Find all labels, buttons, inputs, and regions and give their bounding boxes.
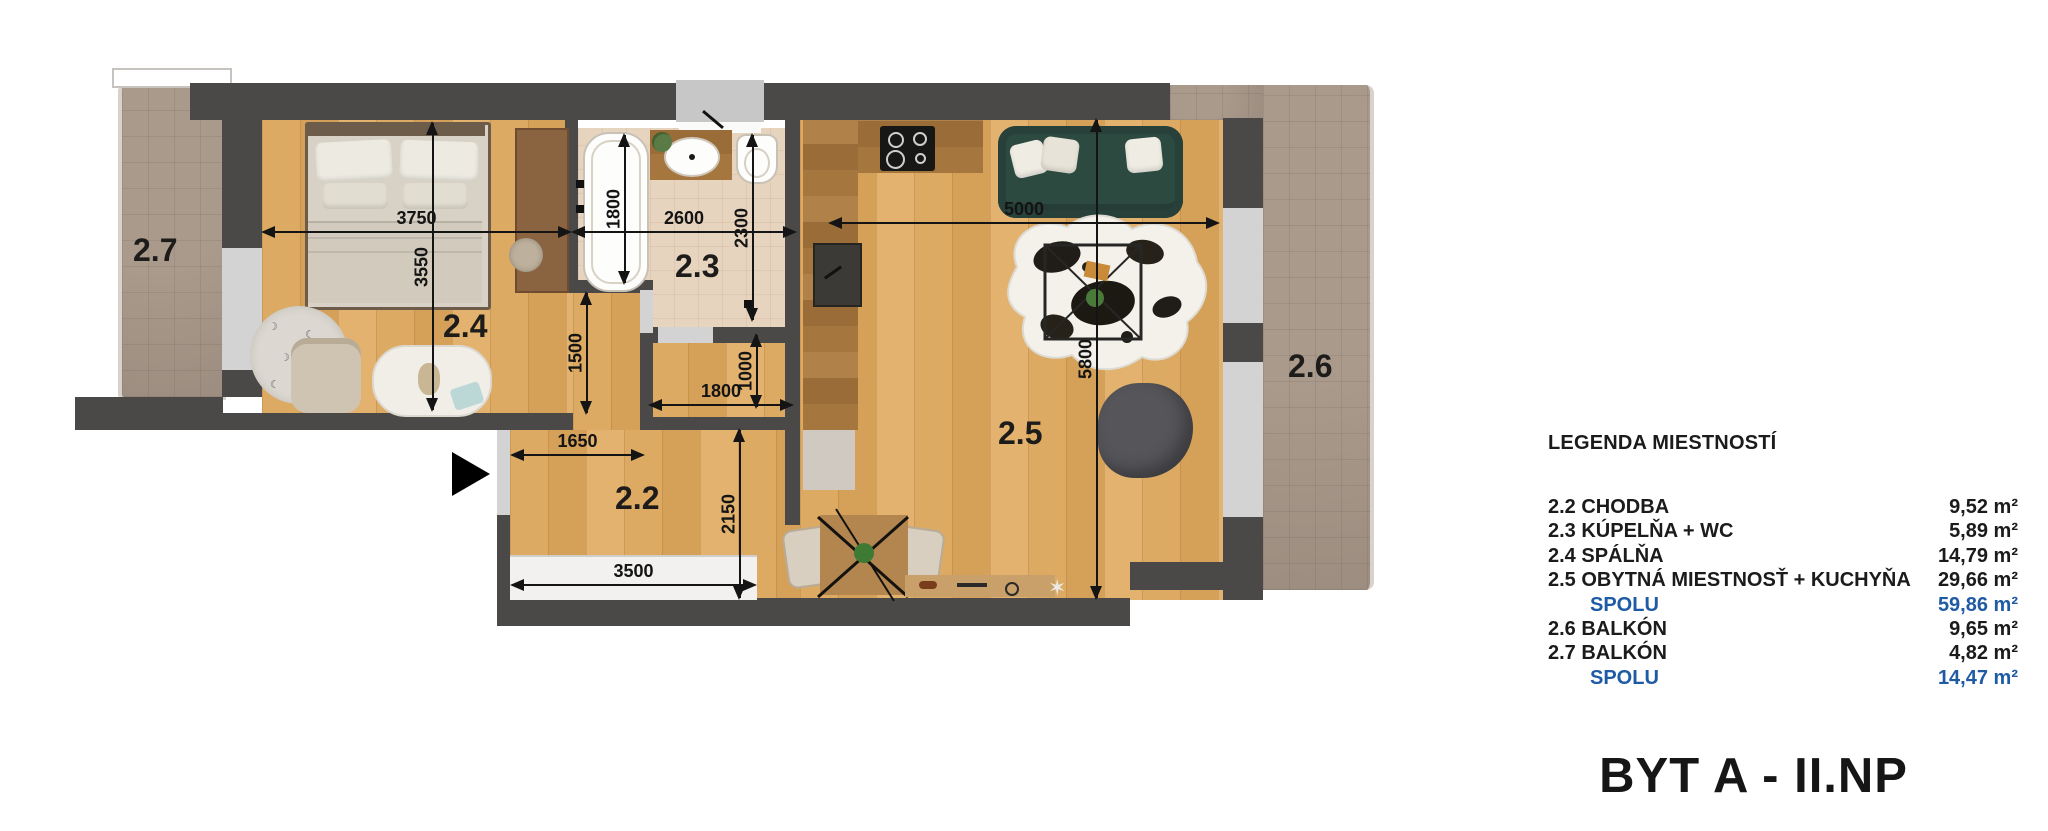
page-title: BYT A - II.NP (1599, 748, 1908, 804)
room-label-hallway: 2.2 (615, 480, 659, 517)
dining-table-legs (808, 505, 920, 605)
wall-nook-hall (640, 333, 653, 430)
dim-bedroom-height: 3550 (432, 123, 434, 410)
room-label-balcony-left: 2.7 (133, 232, 177, 269)
legend-row: 2.6 BALKÓN9,65 m² (1548, 617, 2018, 641)
nook-door (640, 290, 653, 333)
room-label-bathroom: 2.3 (675, 248, 719, 285)
living-balcony-window-1 (1223, 208, 1263, 323)
dim-bedroom-width: 3750 (263, 231, 570, 233)
kitchen-sink (813, 243, 862, 307)
entrance-arrow-icon (452, 452, 490, 496)
wall-bottom-right-step (1130, 562, 1263, 590)
room-label-bedroom: 2.4 (443, 308, 487, 345)
door-hinge-mark-2 (576, 205, 584, 213)
dim-bathtub-length: 1800 (624, 135, 626, 283)
legend-title: LEGENDA MIESTNOSTÍ (1548, 432, 2018, 455)
legend: LEGENDA MIESTNOSTÍ 2.2 CHODBA9,52 m² 2.3… (1548, 432, 2018, 690)
door-hinge-mark-1 (576, 180, 584, 188)
wall-bathroom-living (785, 120, 800, 525)
plant-small (652, 132, 672, 152)
legend-row: 2.3 KÚPELŇA + WC5,89 m² (1548, 519, 2018, 543)
balcony-2-6-floor-arm (1170, 85, 1263, 120)
kitchen-appliance (803, 430, 855, 490)
dim-living-width: 5000 (830, 222, 1218, 224)
room-label-living: 2.5 (998, 415, 1042, 452)
wall-hall-left (497, 515, 510, 606)
dim-bathroom-width: 2600 (573, 231, 795, 233)
legend-row-total: SPOLU59,86 m² (1548, 593, 2018, 617)
teddy-bear (418, 363, 440, 395)
blanket (449, 381, 484, 411)
entrance-door-strip (497, 430, 510, 515)
legend-row-total: SPOLU14,47 m² (1548, 666, 2018, 690)
dim-hall-mid-height: 1000 (756, 335, 758, 407)
wall-living-right (1223, 118, 1263, 600)
dim-living-height: 5800 (1096, 120, 1098, 598)
bathroom-door (658, 327, 713, 343)
legend-row: 2.7 BALKÓN4,82 m² (1548, 641, 2018, 665)
door-hinge-mark-3 (744, 300, 752, 308)
bedroom-stool (509, 238, 543, 272)
coffee-table (1043, 243, 1143, 341)
dim-nook-height: 1500 (586, 293, 588, 413)
dim-hall-width: 1650 (512, 454, 643, 456)
wall-bottom-left-corner (75, 397, 223, 430)
dim-window-width: 3500 (512, 584, 755, 586)
dim-hall-height: 2150 (739, 430, 741, 598)
shaft-box (676, 80, 764, 122)
room-label-balcony-right: 2.6 (1288, 348, 1332, 385)
dim-hall-mid-width: 1800 (650, 404, 792, 406)
legend-row: 2.2 CHODBA9,52 m² (1548, 495, 2018, 519)
dim-bathroom-height: 2300 (752, 135, 754, 320)
floorplan-page: ☽☾ ☽☾ ☾☽ (0, 0, 2048, 831)
sideboard (905, 575, 1055, 597)
armchair (291, 338, 361, 413)
balcony-2-6-floor (1263, 85, 1374, 590)
legend-row: 2.4 SPÁLŇA14,79 m² (1548, 544, 2018, 568)
star-decal: ✶ (1048, 575, 1066, 601)
cooktop (880, 126, 935, 171)
living-balcony-door (1223, 362, 1263, 517)
legend-row: 2.5 OBYTNÁ MIESTNOSŤ + KUCHYŇA29,66 m² (1548, 568, 2018, 592)
wall-under-hall-mid (650, 417, 790, 430)
bathroom-sink (664, 137, 720, 177)
